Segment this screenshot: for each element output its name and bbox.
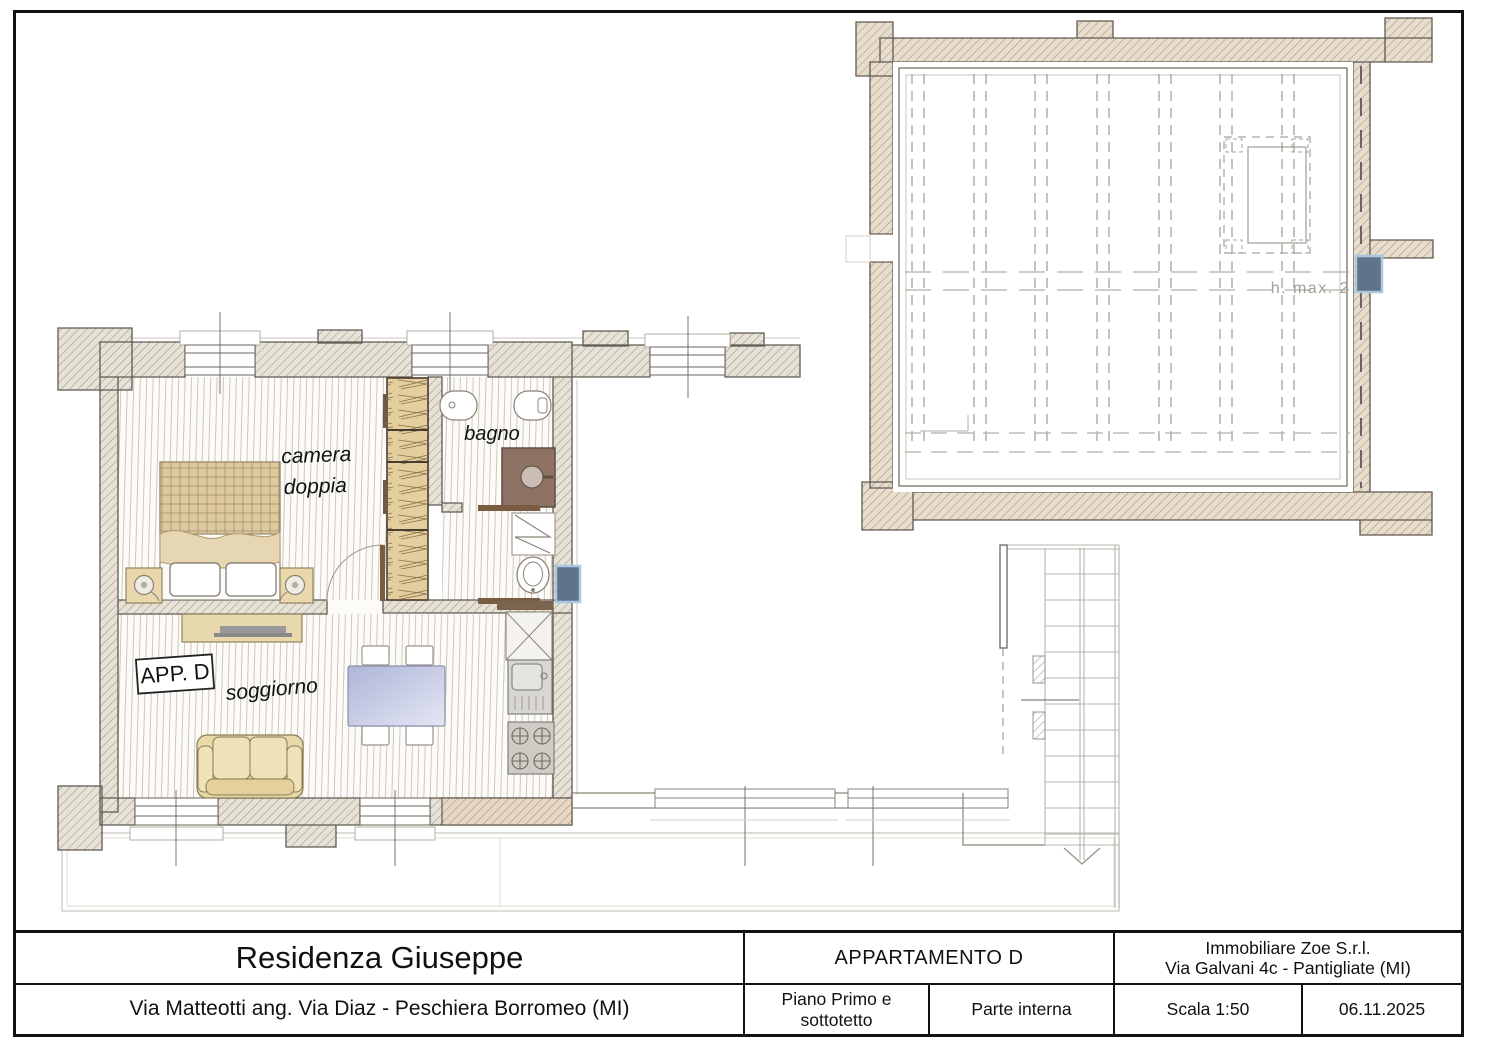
company-address: Via Galvani 4c - Pantigliate (MI) [1165, 958, 1411, 978]
scale-label: Scala 1:50 [1113, 983, 1301, 1034]
floor-label: Piano Primo e sottotetto [743, 983, 928, 1034]
date-label: 06.11.2025 [1301, 983, 1461, 1034]
project-name: Residenza Giuseppe [16, 933, 743, 983]
title-block: Residenza Giuseppe APPARTAMENTO D Immobi… [16, 930, 1461, 1034]
scope-label: Parte interna [928, 983, 1113, 1034]
page-border: Residenza Giuseppe APPARTAMENTO D Immobi… [13, 10, 1464, 1037]
apartment-title: APPARTAMENTO D [743, 933, 1113, 983]
company-info: Immobiliare Zoe S.r.l. Via Galvani 4c - … [1113, 933, 1461, 983]
project-address: Via Matteotti ang. Via Diaz - Peschiera … [16, 983, 743, 1034]
company-name: Immobiliare Zoe S.r.l. [1165, 938, 1411, 958]
